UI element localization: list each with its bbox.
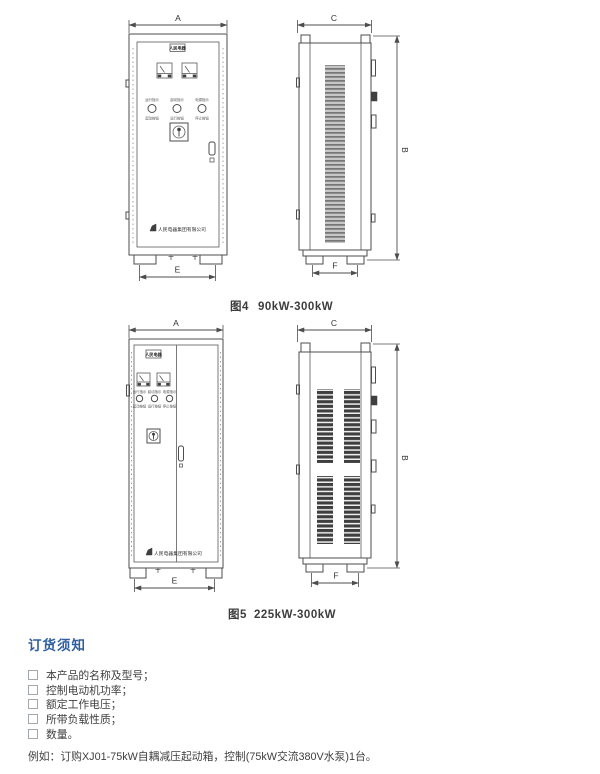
dim-label-f: F [332, 261, 337, 271]
figure5-front-view: A 人民电器 运行指示 起动指示 电源指示 [127, 318, 224, 592]
checkbox-icon [28, 729, 38, 739]
hinge [126, 80, 129, 87]
button-label: 起动按钮 [145, 116, 159, 121]
side-knob [372, 396, 378, 405]
frame-post [301, 343, 310, 352]
order-example: 例如：订购XJ01-75kW自耦减压起动箱，控制(75kW交流380V水泵)1台… [28, 748, 588, 764]
side-bracket [372, 115, 377, 128]
side-latch [372, 60, 376, 76]
order-item-label: 控制电动机功率； [46, 682, 132, 698]
figure5-caption-range: 225kW-300kW [254, 609, 336, 621]
foot [306, 564, 323, 572]
louver-vent [325, 65, 345, 243]
figure5-side-view: C F B [297, 318, 411, 587]
order-item: 所带负载性质； [28, 712, 588, 727]
dim-label-c: C [331, 13, 337, 23]
button-label: 停止按钮 [195, 116, 209, 121]
base-mark [156, 568, 161, 573]
louver-vent [317, 476, 333, 544]
indicator-label: 电源指示 [163, 389, 177, 394]
foot [306, 256, 323, 264]
dim-label-b: B [400, 455, 410, 461]
plinth [303, 558, 367, 564]
order-item-label: 数量。 [46, 726, 78, 742]
dim-label-a: A [173, 318, 179, 328]
plinth [303, 250, 367, 256]
louver-vent [344, 389, 360, 463]
brand-nameplate-text: 人民电器 [168, 45, 187, 52]
louver-vent [344, 476, 360, 544]
button-label: 停止按钮 [163, 404, 177, 409]
checkbox-icon [28, 670, 38, 680]
order-item: 数量。 [28, 726, 588, 741]
indicator-label: 运行指示 [133, 389, 147, 394]
button-label: 运行按钮 [170, 116, 184, 121]
louver-vent [317, 389, 333, 463]
figure4-caption-label: 图4 [230, 299, 249, 313]
figure4-caption: 图4 90kW-300kW [230, 299, 333, 313]
indicator-label: 电源指示 [195, 97, 209, 102]
checkbox-icon [28, 699, 38, 709]
hinge [126, 212, 129, 219]
hinge [297, 78, 300, 87]
figure4-front-view: A 人民电器 运行指示 起动指示 电源指示 [126, 13, 227, 281]
foot [134, 255, 156, 264]
brand-text: 人民电器集团有限公司 [154, 550, 202, 557]
foot [347, 564, 364, 572]
order-notice-heading: 订货须知 [28, 634, 588, 654]
brand-text: 人民电器集团有限公司 [158, 226, 206, 233]
technical-drawings: A 人民电器 运行指示 起动指示 电源指示 [0, 0, 600, 630]
frame-post [301, 35, 310, 43]
catalog-page: A 人民电器 运行指示 起动指示 电源指示 [0, 0, 600, 774]
figure5-caption: 图5 225kW-300kW [228, 607, 336, 621]
brand-nameplate-text: 人民电器 [144, 351, 163, 358]
order-item-label: 所带负载性质； [46, 711, 122, 727]
figure4-side-view: C F B [297, 13, 411, 277]
order-item: 额定工作电压； [28, 697, 588, 712]
side-knob [372, 92, 378, 101]
foot [206, 568, 222, 578]
side-latch [372, 367, 376, 383]
button-label: 运行按钮 [148, 404, 162, 409]
foot [347, 256, 364, 264]
base-mark [193, 255, 198, 260]
order-notice-section: 订货须知 本产品的名称及型号； 控制电动机功率； 额定工作电压； 所带负载性质；… [28, 634, 588, 764]
foot [200, 255, 222, 264]
base-mark [191, 568, 196, 573]
checkbox-icon [28, 714, 38, 724]
cabinet-body [129, 34, 227, 255]
hinge [127, 385, 130, 396]
dim-label-a: A [175, 13, 181, 23]
frame-post [361, 343, 370, 352]
checkbox-icon [28, 685, 38, 695]
dim-label-e: E [172, 576, 178, 586]
indicator-label: 起动指示 [170, 97, 184, 102]
indicator-label: 运行指示 [145, 97, 159, 102]
hinge [297, 465, 300, 474]
dim-label-b: B [400, 147, 410, 153]
order-item-label: 额定工作电压； [46, 696, 122, 712]
indicator-label: 起动指示 [148, 389, 162, 394]
side-bracket [372, 420, 377, 433]
side-latch [372, 214, 376, 222]
side-bracket [372, 460, 377, 472]
dim-label-e: E [175, 265, 181, 275]
button-label: 起动按钮 [133, 404, 147, 409]
figure4-caption-range: 90kW-300kW [258, 301, 333, 313]
figure5-caption-label: 图5 [228, 607, 247, 621]
order-item: 本产品的名称及型号； [28, 668, 588, 683]
side-latch [372, 505, 376, 513]
base-mark [169, 255, 174, 260]
frame-post [361, 35, 370, 43]
order-item: 控制电动机功率； [28, 683, 588, 698]
dim-label-f: F [333, 571, 338, 581]
hinge [297, 385, 300, 394]
dim-label-c: C [331, 318, 337, 328]
foot [130, 568, 146, 578]
order-item-label: 本产品的名称及型号； [46, 667, 154, 683]
hinge [297, 210, 300, 219]
